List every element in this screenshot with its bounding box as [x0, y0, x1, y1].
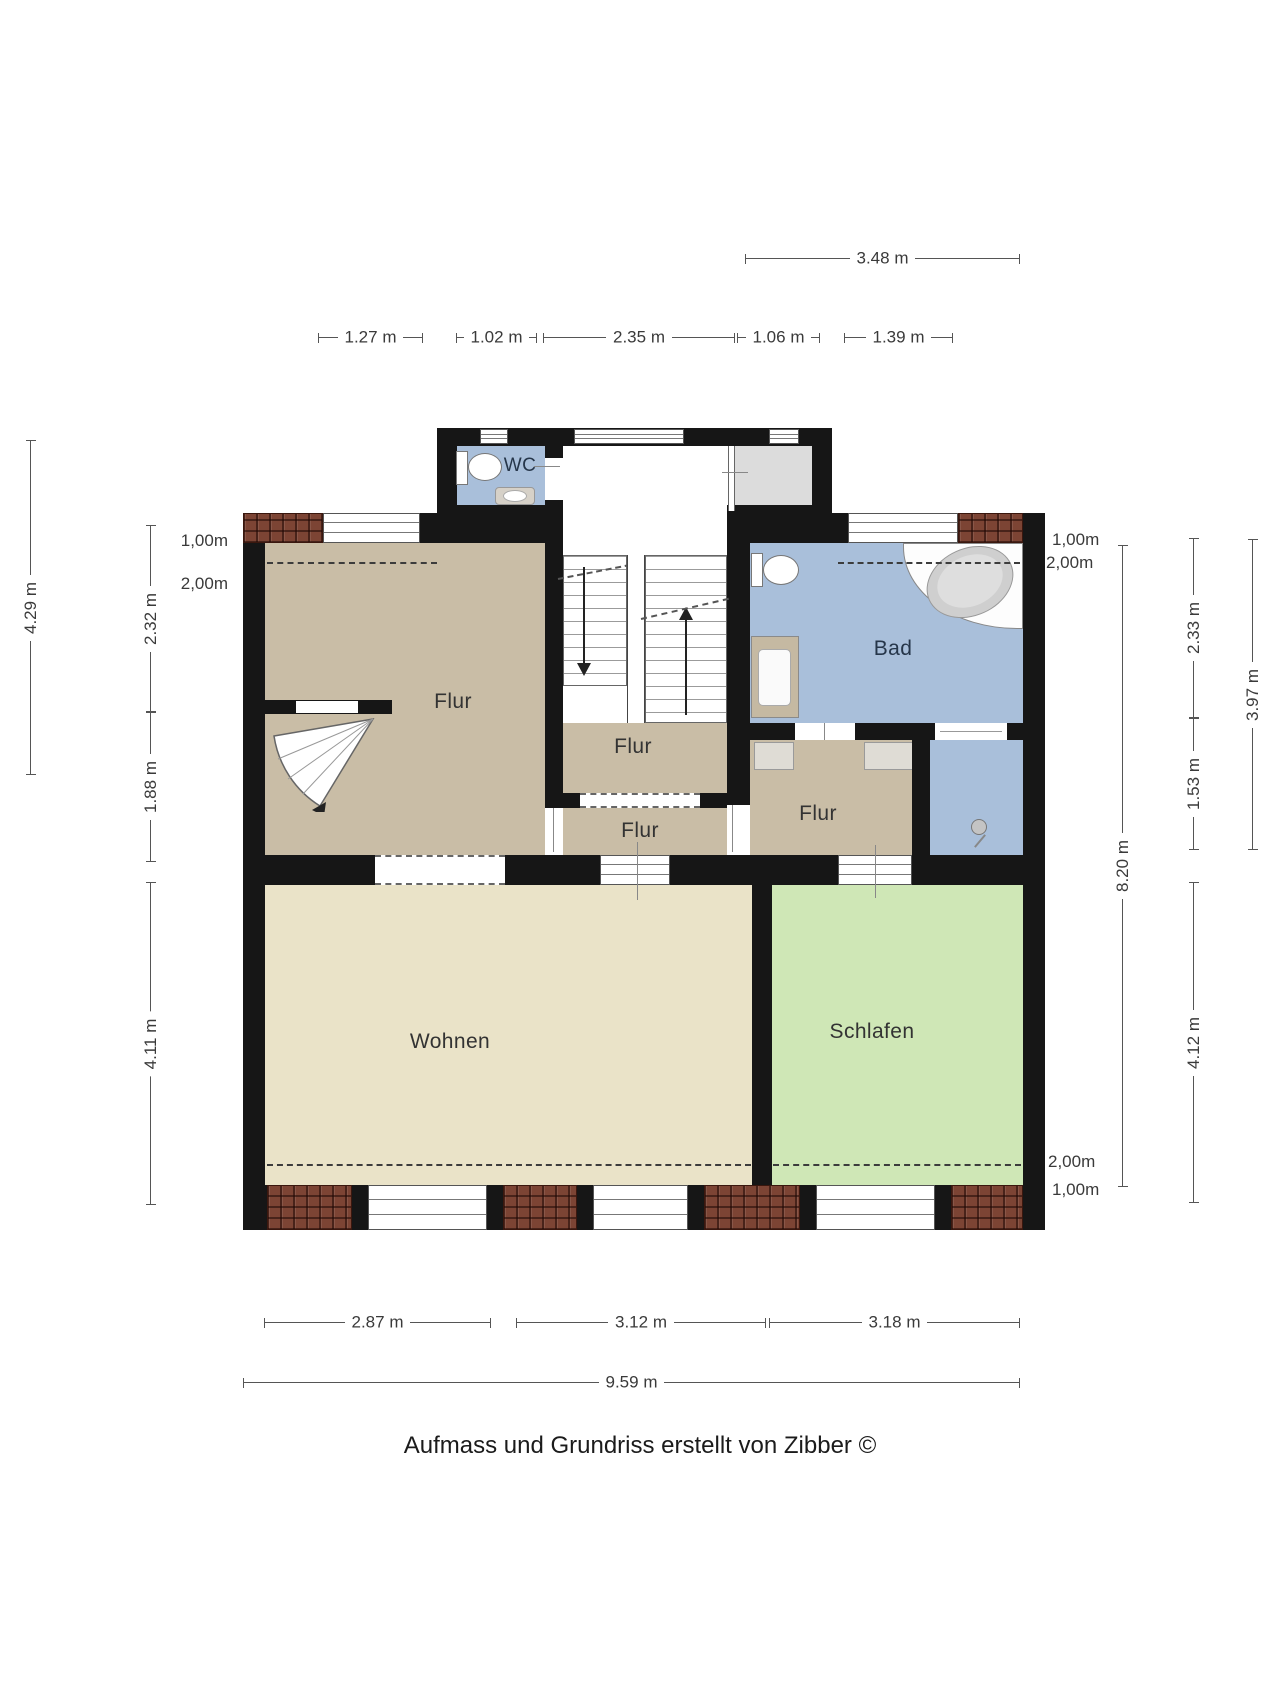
dim-left-seg-3: 4.11 m — [150, 882, 151, 1205]
dim-right-mid-total: 3.97 m — [1252, 539, 1253, 850]
bad-door — [795, 723, 855, 740]
stair-down-arrow-stem — [583, 567, 585, 665]
bottom-pier-4 — [688, 1185, 704, 1230]
room-label-flur-corridor: Flur — [621, 819, 659, 843]
bad-toilet-tank-icon — [751, 553, 763, 587]
room-label-schlafen: Schlafen — [830, 1020, 915, 1044]
room-label-flur-left: Flur — [434, 690, 472, 714]
vestibule-door-tick — [722, 472, 748, 473]
top-wall-brick-left — [243, 513, 323, 543]
dim-bottom-seg-3: 3.18 m — [769, 1322, 1020, 1323]
shower-icon — [971, 819, 987, 835]
wohnen-schlafen-wall — [752, 885, 772, 1185]
room-label-flur-stairs: Flur — [614, 735, 652, 759]
stair-down-arrow-icon — [577, 663, 591, 676]
room-label-wc: WC — [504, 455, 536, 477]
credit-line: Aufmass und Grundriss erstellt von Zibbe… — [0, 1432, 1280, 1460]
bottom-pier-3 — [577, 1185, 593, 1230]
top-wall-brick-right — [958, 513, 1023, 543]
right-height-mark-bottom-200: 2,00m — [1048, 1152, 1095, 1172]
wc-label-leader — [534, 466, 560, 467]
wohnen-sliding-door — [375, 855, 505, 885]
wc-door — [545, 458, 563, 500]
dim-right-seg-2: 1.53 m — [1193, 718, 1194, 850]
bottom-window-3 — [816, 1185, 935, 1230]
knee-wall-line-flur — [267, 562, 437, 564]
bottom-pier-1 — [352, 1185, 368, 1230]
bottom-brick-2 — [503, 1185, 577, 1230]
dim-bottom-seg-2: 3.12 m — [516, 1322, 766, 1323]
flur-right-door — [727, 805, 750, 852]
top-right-corner — [1023, 513, 1045, 543]
bottom-window-2 — [593, 1185, 688, 1230]
bad-toilet-bowl-icon — [763, 555, 799, 585]
flur-left-stub-opening — [296, 701, 358, 713]
dim-left-outer: 4.29 m — [30, 440, 31, 775]
right-outer-wall — [1023, 543, 1045, 1185]
dim-left-seg-1: 2.32 m — [150, 525, 151, 712]
floorplan-sheet: 3.48 m 1.27 m 1.02 m 2.35 m 1.06 m 1.39 … — [0, 0, 1280, 1707]
bottom-window-1 — [368, 1185, 487, 1230]
shower-door-line — [940, 731, 1002, 732]
bottom-brick-1 — [267, 1185, 352, 1230]
left-height-mark-200: 2,00m — [148, 574, 228, 594]
room-label-wohnen: Wohnen — [410, 1030, 490, 1054]
dim-top-seg-2: 1.02 m — [456, 337, 537, 338]
schlafen-door-leader — [875, 845, 876, 898]
right-height-mark-bottom-100: 1,00m — [1052, 1180, 1099, 1200]
bad-vanity-basin — [758, 649, 791, 706]
knee-wall-line-wohnen — [267, 1164, 751, 1166]
stair-up-arrow-stem — [685, 619, 687, 715]
dim-left-seg-2: 1.88 m — [150, 712, 151, 862]
knee-wall-line-schlafen — [773, 1164, 1021, 1166]
top-wall-window-right — [848, 513, 958, 543]
tower-right-wall — [812, 428, 832, 513]
stairhall-sliding-door — [580, 793, 700, 808]
tower-left-wall — [437, 428, 457, 513]
dim-top-seg-5: 1.39 m — [844, 337, 953, 338]
dim-top-total: 3.48 m — [745, 258, 1020, 259]
bad-door-tick — [824, 723, 825, 740]
dim-bottom-total: 9.59 m — [243, 1382, 1020, 1383]
dim-top-seg-4: 1.06 m — [737, 337, 820, 338]
right-height-mark-top-100: 1,00m — [1052, 530, 1099, 550]
stair-divider — [627, 555, 645, 723]
bad-door-niche-left — [754, 742, 794, 770]
room-label-flur-right: Flur — [799, 802, 837, 826]
dim-top-seg-3: 2.35 m — [543, 337, 735, 338]
dim-right-lower-seg: 4.12 m — [1193, 882, 1194, 1203]
flur-corridor-leader — [637, 842, 638, 900]
top-wall-pier-left — [420, 513, 437, 543]
bottom-pier-6 — [935, 1185, 951, 1230]
dim-right-total: 8.20 m — [1122, 545, 1123, 1187]
wc-toilet-tank-icon — [456, 451, 468, 485]
flur-left-door — [545, 808, 563, 852]
shower-left-wall — [912, 740, 930, 855]
top-wall-window-left — [323, 513, 420, 543]
stairhall-right-wall — [727, 513, 750, 805]
room-label-bad: Bad — [874, 637, 913, 661]
bottom-pier-2 — [487, 1185, 503, 1230]
dim-top-total-label: 3.48 m — [850, 247, 916, 268]
knee-wall-line-bad — [838, 562, 1020, 564]
tower-window-1 — [480, 429, 508, 444]
spiral-staircase — [268, 714, 383, 812]
tower-window-2 — [574, 429, 684, 444]
room-wohnen — [265, 885, 752, 1185]
room-vestibule — [735, 446, 812, 511]
bottom-brick-4 — [951, 1185, 1023, 1230]
left-height-mark-100: 1,00m — [148, 531, 228, 551]
wohnen-door — [600, 855, 670, 885]
tower-window-3 — [769, 429, 799, 444]
bottom-brick-3 — [704, 1185, 800, 1230]
bottom-corner-left — [243, 1185, 267, 1230]
wc-sink-basin — [503, 490, 527, 502]
dim-right-seg-1: 2.33 m — [1193, 538, 1194, 718]
room-shower — [930, 740, 1023, 855]
bottom-corner-right — [1023, 1185, 1045, 1230]
dim-bottom-seg-1: 2.87 m — [264, 1322, 491, 1323]
bad-door-niche-right — [864, 742, 914, 770]
flur-left-door-leaf — [553, 808, 554, 852]
dim-top-seg-1: 1.27 m — [318, 337, 423, 338]
right-height-mark-top-200: 2,00m — [1046, 553, 1093, 573]
flur-right-door-leaf — [732, 805, 733, 852]
wc-toilet-bowl-icon — [468, 453, 502, 481]
stairhall-left-wall — [545, 446, 563, 808]
bottom-pier-5 — [800, 1185, 816, 1230]
vestibule-glass-door — [728, 446, 735, 511]
top-wall-pier-right — [832, 513, 848, 543]
